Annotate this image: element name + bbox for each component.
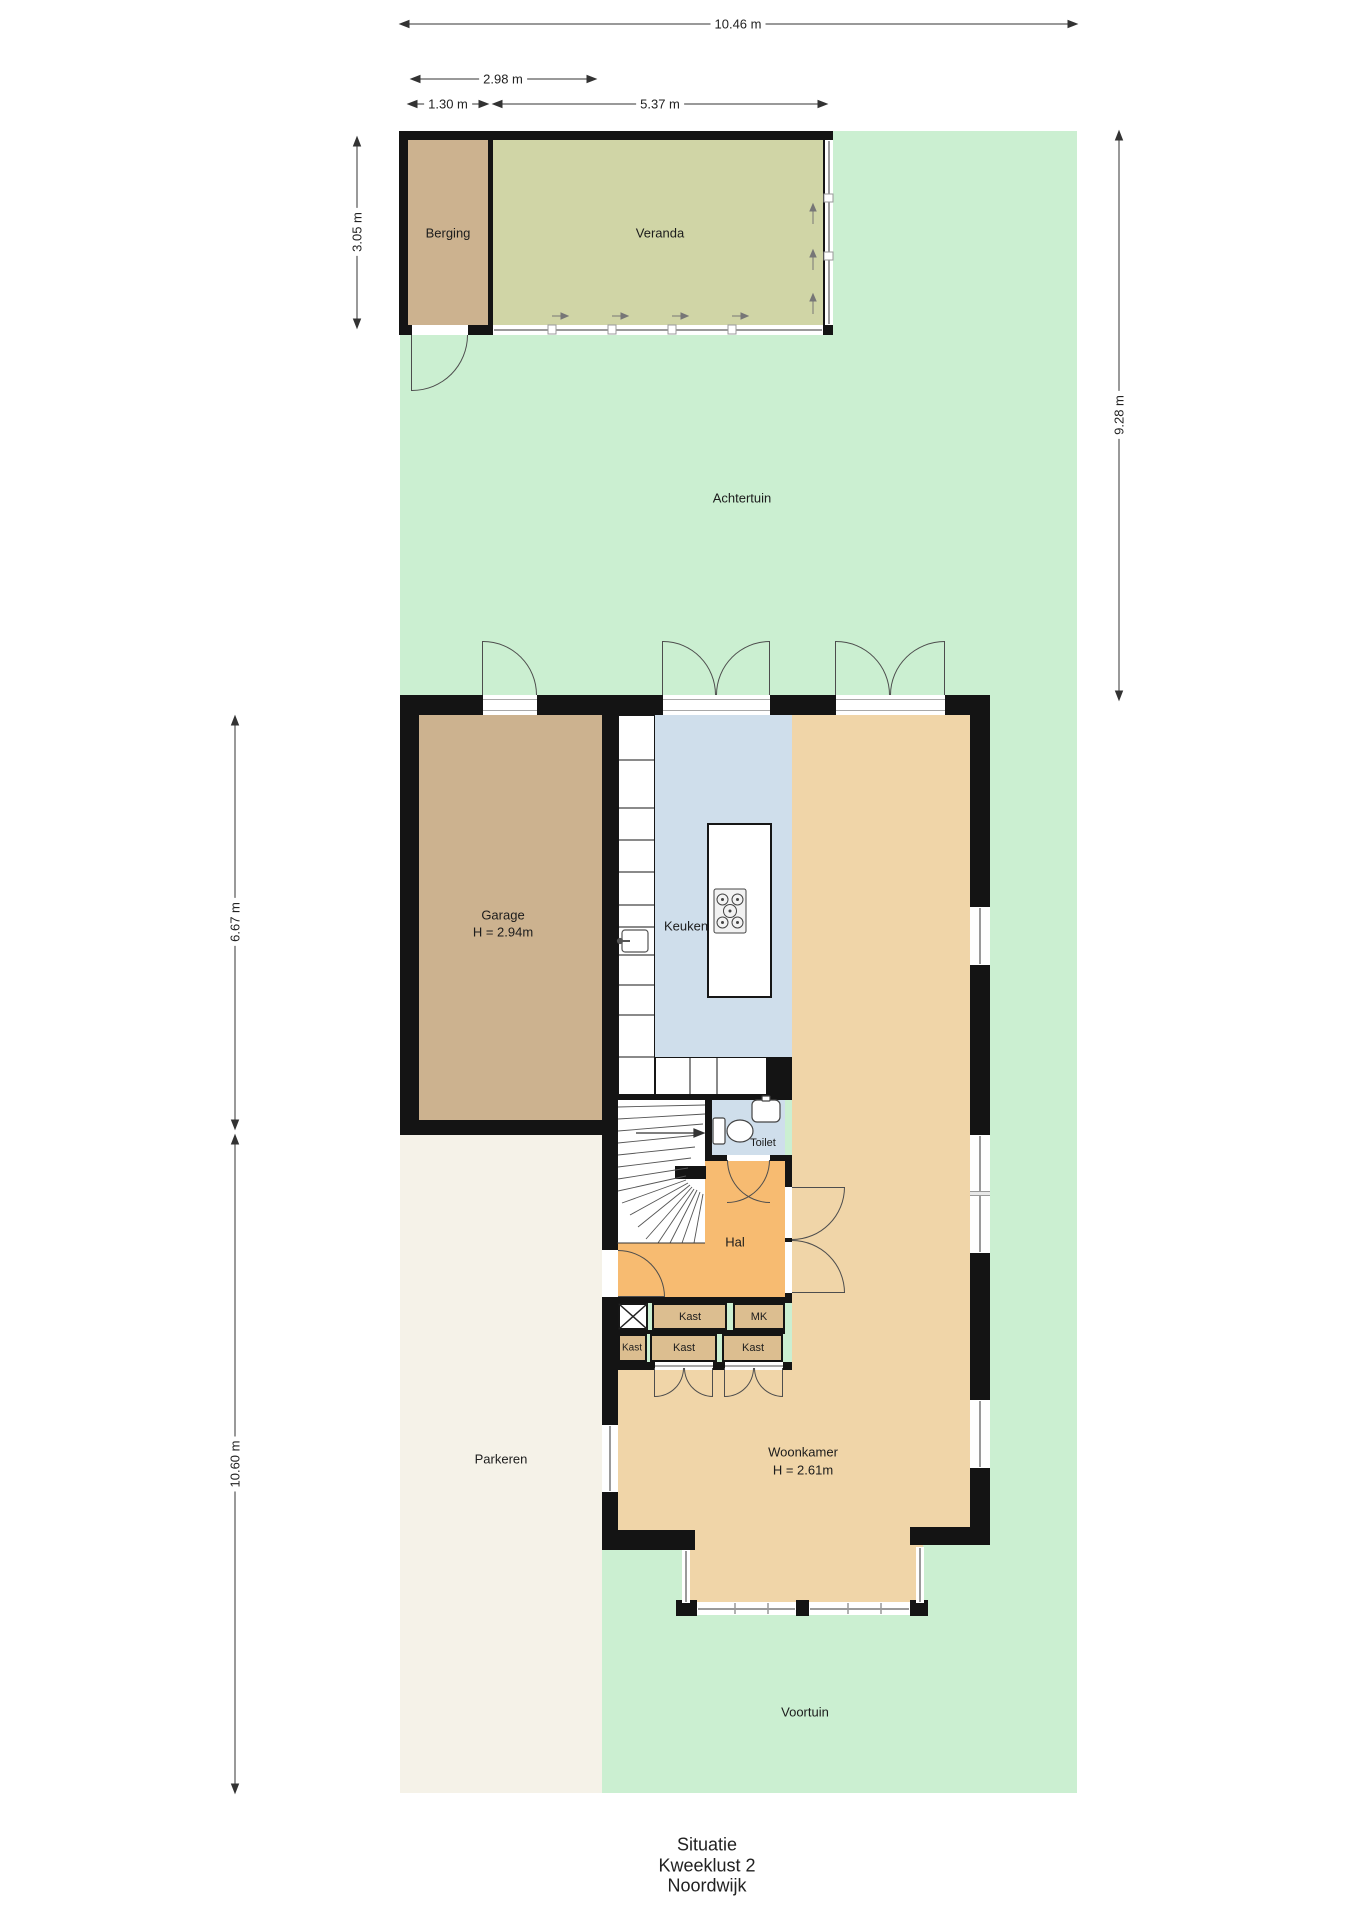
- bay-window-bottom-1: [697, 1602, 796, 1615]
- label-veranda: Veranda: [636, 226, 684, 241]
- bay-window-right: [916, 1547, 924, 1603]
- label-achtertuin: Achtertuin: [713, 491, 772, 506]
- label-kast-3: Kast: [673, 1342, 695, 1354]
- bay-window-floor: [686, 1530, 923, 1604]
- dim-parkeren-depth: 10.60 m: [228, 1437, 243, 1492]
- wall-toilet-left: [705, 1095, 712, 1160]
- wall-closet-bottom-a: [618, 1362, 655, 1370]
- dim-berging-width: 1.30 m: [424, 97, 472, 112]
- closet3-leaf-right: [712, 1368, 713, 1397]
- kitchen-door-leaf-right: [769, 641, 770, 695]
- kitchen-island: [707, 823, 772, 998]
- kitchen-door-leaf-left: [662, 641, 663, 695]
- label-mk: MK: [751, 1311, 768, 1323]
- label-garage: Garage: [481, 908, 524, 923]
- floorplan-page: 10.46 m 2.98 m 1.30 m 5.37 m 3.05 m 9.28…: [0, 0, 1358, 1920]
- dim-veranda-width: 5.37 m: [636, 97, 684, 112]
- wall-garage-bottom: [400, 1120, 618, 1135]
- wall-bottom-right: [910, 1527, 990, 1545]
- label-woonkamer: Woonkamer: [768, 1445, 838, 1460]
- front-door-leaf: [618, 1296, 665, 1297]
- window-right-1: [970, 907, 990, 965]
- wall-closet-bottom-c: [783, 1362, 792, 1370]
- front-door-opening: [602, 1250, 618, 1297]
- shed-door-opening: [412, 325, 468, 335]
- wall-kitchen-stub: [767, 1057, 792, 1097]
- kitchen-doors-opening: [663, 695, 770, 715]
- bay-window-left: [682, 1550, 690, 1603]
- window-right-3: [970, 1400, 990, 1468]
- hall-door-leaf-2: [792, 1292, 845, 1293]
- hall-door-leaf-1: [792, 1187, 845, 1188]
- label-hal: Hal: [725, 1235, 745, 1250]
- veranda-glass-side: [825, 140, 833, 325]
- shed-door-leaf: [411, 335, 412, 391]
- wall-hall-right-top: [785, 1155, 792, 1187]
- bay-window-bottom-2: [809, 1602, 910, 1615]
- dim-berging-outer: 2.98 m: [479, 72, 527, 87]
- wall-toilet-bottom-a: [705, 1155, 727, 1161]
- plan-title: Situatie: [677, 1835, 737, 1856]
- label-berging: Berging: [426, 226, 471, 241]
- veranda-glass-front: [493, 325, 823, 335]
- closet4-leaf-right: [782, 1368, 783, 1397]
- kitchen-counter-left: [618, 715, 655, 1095]
- wall-kitchen-stairs: [602, 1095, 792, 1100]
- wall-inner-left: [602, 695, 618, 1530]
- wall-left: [400, 715, 419, 1135]
- label-kast-1: Kast: [679, 1311, 701, 1323]
- dim-achtertuin-depth: 9.28 m: [1112, 391, 1127, 439]
- label-keuken: Keuken: [664, 919, 708, 934]
- closet4-leaf-left: [724, 1368, 725, 1397]
- label-kast-2: Kast: [622, 1343, 642, 1354]
- bay-post-center: [796, 1600, 809, 1616]
- wall-bottom-left: [602, 1530, 695, 1550]
- plan-subtitle-address: Kweeklust 2: [658, 1856, 755, 1877]
- garage-door-leaf: [482, 641, 483, 695]
- label-toilet: Toilet: [750, 1137, 776, 1149]
- window-left-wall: [602, 1425, 618, 1492]
- kitchen-counter-bottom: [655, 1057, 767, 1095]
- wall-hall-right-mid: [785, 1238, 792, 1242]
- plan-subtitle-city: Noordwijk: [667, 1876, 746, 1897]
- garage-door-opening: [483, 695, 537, 715]
- window-right-2-mullion: [970, 1191, 990, 1196]
- living-doors-opening: [836, 695, 945, 715]
- label-kast-4: Kast: [742, 1342, 764, 1354]
- label-parkeren: Parkeren: [475, 1452, 528, 1467]
- stairs-newel-wall: [675, 1166, 706, 1179]
- label-woonkamer-height: H = 2.61m: [773, 1463, 833, 1478]
- shaft-box: [618, 1303, 648, 1330]
- living-door-leaf-left: [835, 641, 836, 695]
- dim-berging-depth: 3.05 m: [350, 208, 365, 256]
- dim-garage-section: 6.67 m: [228, 898, 243, 946]
- label-garage-height: H = 2.94m: [473, 925, 533, 940]
- living-door-leaf-right: [944, 641, 945, 695]
- label-voortuin: Voortuin: [781, 1705, 829, 1720]
- dim-plot-width: 10.46 m: [711, 17, 766, 32]
- closet3-leaf-left: [654, 1368, 655, 1397]
